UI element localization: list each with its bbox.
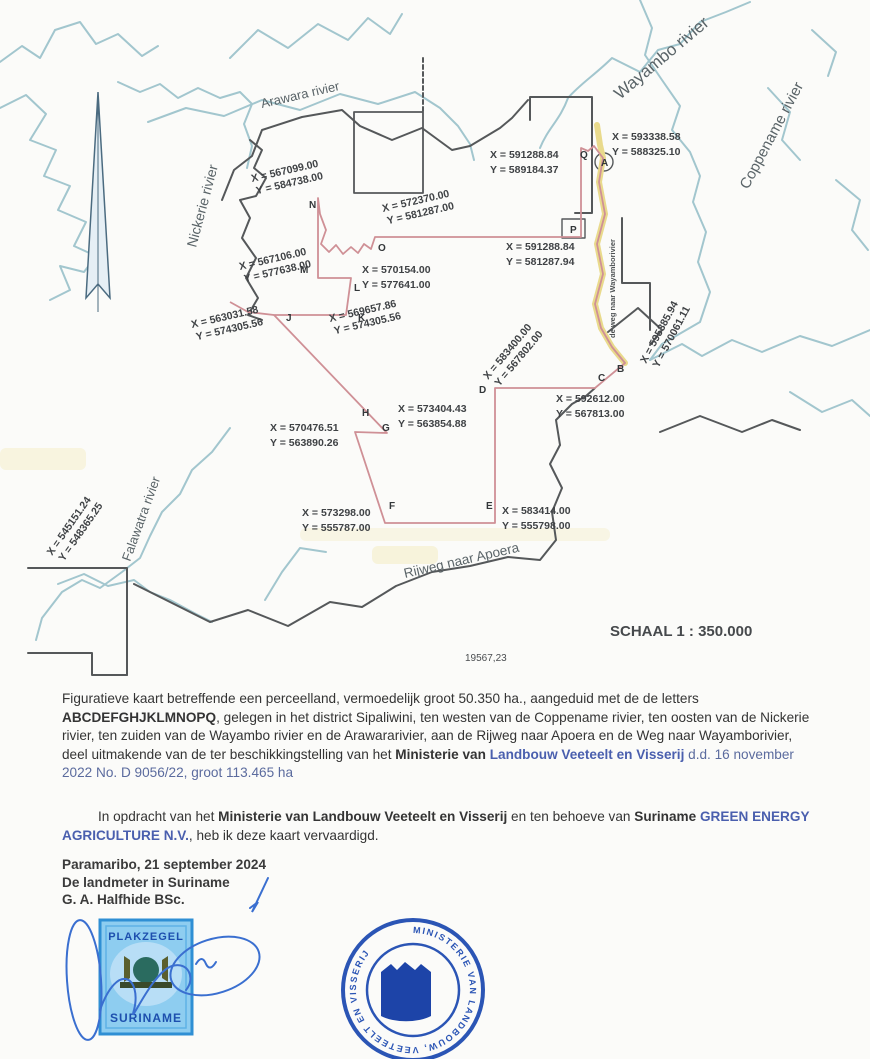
vertex-letter-n: N (309, 200, 316, 211)
coords-c: X = 592612.00 Y = 567813.00 (556, 393, 625, 420)
coord-p-y: Y = 581287.94 (506, 256, 575, 268)
p1-text: Figuratieve kaart betreffende een percee… (62, 691, 699, 706)
area-number: 19567,23 (465, 653, 507, 664)
coords-a: X = 593338.58 Y = 588325.10 (612, 131, 681, 158)
coord-q-y: Y = 589184.37 (490, 164, 559, 176)
road-label-apoera: Rijweg naar Apoera (402, 540, 521, 581)
survey-map: Arawara rivier Wayambo rivier Coppename … (0, 0, 870, 690)
coord-c-y: Y = 567813.00 (556, 408, 625, 420)
road-line (622, 218, 650, 330)
coords-g: X = 570476.51 Y = 563890.26 (270, 422, 339, 449)
coords-j: X = 563031.58 Y = 574305.56 (190, 303, 264, 343)
vertex-letter-a: A (601, 158, 608, 169)
coords-b: X = 595385.94 Y = 570061.11 (638, 298, 693, 372)
commission-paragraph: In opdracht van het Ministerie van Landb… (62, 808, 814, 845)
vertex-letter-e: E (486, 501, 493, 512)
river-path (230, 14, 402, 58)
signature-stroke (196, 959, 216, 968)
coord-a-y: Y = 588325.10 (612, 146, 681, 158)
p2-text: , heb ik deze kaart vervaardigd. (189, 828, 379, 843)
coord-h-x: X = 573404.43 (398, 403, 467, 415)
coords-q: X = 591288.84 Y = 589184.37 (490, 149, 559, 176)
river-path (265, 548, 326, 600)
survey-lines (28, 58, 800, 675)
coord-g-x: X = 570476.51 (270, 422, 339, 434)
coord-l-x: X = 570154.00 (362, 264, 431, 276)
river-path (650, 330, 870, 360)
apoera-road-line (134, 445, 562, 626)
river-path (790, 392, 870, 416)
stamp-base (120, 982, 172, 988)
ministry-emblem (381, 962, 431, 1021)
vertex-letter-h: H (362, 408, 369, 419)
p1-letters: ABCDEFGHJKLMNOPQ (62, 710, 216, 725)
coord-p-x: X = 591288.84 (506, 241, 575, 253)
scale-label: SCHAAL 1 : 350.000 (610, 623, 752, 640)
vertex-letter-j: J (286, 313, 292, 324)
coord-l-y: Y = 577641.00 (362, 279, 431, 291)
coords-n: X = 567099.00 Y = 584738.00 (250, 157, 324, 197)
coord-g-y: Y = 563890.26 (270, 437, 339, 449)
river-label-arawara: Arawara rivier (259, 78, 341, 111)
river-label-falawatra: Falawatra rivier (119, 474, 164, 563)
vertex-letter-l: L (354, 283, 360, 294)
vertex-letter-f: F (389, 501, 395, 512)
boundary-rect (354, 112, 423, 193)
coord-f-x: X = 573298.00 (302, 507, 371, 519)
vertex-letter-p: P (570, 225, 577, 236)
p2-suriname: Suriname (634, 809, 700, 824)
river-dark-line (660, 416, 800, 432)
river-path (0, 22, 158, 62)
stamps-area: PLAKZEGEL SURINAME MINISTERIE VAN LANDBO… (0, 860, 870, 1059)
vertex-letter-d: D (479, 385, 486, 396)
river-path (148, 92, 474, 160)
plakzegel-bottom-text: SURINAME (110, 1011, 182, 1025)
vertex-letter-c: C (598, 373, 605, 384)
vertex-letter-g: G (382, 423, 390, 434)
p1-ministry: Ministerie van (395, 747, 489, 762)
frame-line (28, 653, 127, 675)
coords-h: X = 573404.43 Y = 563854.88 (398, 403, 467, 430)
river-path (812, 30, 836, 76)
river-path (836, 180, 868, 250)
coords-d: X = 583400.00 Y = 567802.00 (481, 320, 546, 390)
signature-stroke (250, 878, 268, 912)
coords-f: X = 573298.00 Y = 555787.00 (302, 507, 371, 534)
coord-a-x: X = 593338.58 (612, 131, 681, 143)
river-label-nickerie: Nickerie rivier (183, 162, 220, 248)
coords-p: X = 591288.84 Y = 581287.94 (506, 241, 575, 268)
coords-l: X = 570154.00 Y = 577641.00 (362, 264, 431, 291)
coords-k: X = 569657.86 Y = 574305.56 (328, 297, 402, 337)
river-path (0, 95, 96, 300)
plakzegel-stamp: PLAKZEGEL SURINAME (100, 920, 192, 1034)
coord-h-y: Y = 563854.88 (398, 418, 467, 430)
p1-ministry-blue: Landbouw Veeteelt en Visserij (490, 747, 685, 762)
river-label-wayambo: Wayambo rivier (610, 13, 712, 103)
plakzegel-top-text: PLAKZEGEL (108, 931, 184, 943)
scanned-map-document: Arawara rivier Wayambo rivier Coppename … (0, 0, 870, 1059)
p2-ministry: Ministerie van Landbouw Veeteelt en Viss… (218, 809, 507, 824)
north-arrow-icon (86, 92, 110, 312)
coord-e-x: X = 583414.00 (502, 505, 571, 517)
boundary-line (240, 140, 266, 320)
coords-sw: X = 545151.24 Y = 548365.25 (45, 493, 106, 565)
description-paragraph: Figuratieve kaart betreffende een percee… (62, 690, 814, 783)
ministry-stamp: MINISTERIE VAN LANDBOUW, VEETEELT EN VIS… (343, 920, 483, 1059)
vertex-letter-q: Q (580, 150, 588, 161)
coord-c-x: X = 592612.00 (556, 393, 625, 405)
road-label-wayambo-road: de weg naar Wayamborivier (608, 239, 617, 338)
coords-e: X = 583414.00 Y = 555798.00 (502, 505, 571, 532)
coord-e-y: Y = 555798.00 (502, 520, 571, 532)
river-path (118, 82, 252, 168)
coords-m: X = 567106.00 Y = 577638.00 (238, 245, 312, 285)
vertex-letter-b: B (617, 364, 624, 375)
coord-f-y: Y = 555787.00 (302, 522, 371, 534)
coord-q-x: X = 591288.84 (490, 149, 559, 161)
p2-text: In opdracht van het (98, 809, 218, 824)
vertex-letter-o: O (378, 243, 386, 254)
river-label-coppename: Coppename rivier (737, 79, 808, 192)
p2-text: en ten behoeve van (507, 809, 634, 824)
